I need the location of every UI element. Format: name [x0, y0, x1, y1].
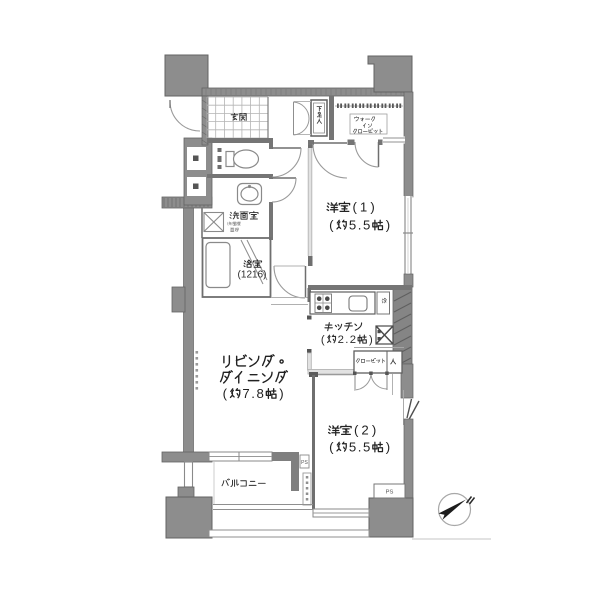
- svg-text:5: 5: [363, 439, 370, 454]
- svg-text:.: .: [345, 334, 348, 346]
- svg-text:2: 2: [361, 422, 368, 437]
- svg-text:): ): [386, 439, 390, 454]
- svg-text:5: 5: [363, 217, 370, 232]
- svg-text:(: (: [329, 439, 334, 454]
- svg-text:(: (: [223, 386, 228, 401]
- svg-text:(: (: [354, 422, 359, 437]
- svg-text:2: 2: [350, 334, 356, 346]
- svg-text:.: .: [358, 217, 362, 232]
- svg-text:5: 5: [349, 217, 356, 232]
- svg-text:1: 1: [360, 199, 367, 214]
- svg-text:5: 5: [349, 439, 356, 454]
- svg-text:.: .: [358, 439, 362, 454]
- svg-text:PS: PS: [386, 490, 394, 496]
- svg-text:(: (: [352, 199, 357, 214]
- svg-text:(: (: [321, 334, 325, 346]
- svg-text:8: 8: [257, 386, 264, 401]
- svg-text:.: .: [251, 386, 255, 401]
- svg-text:PS: PS: [301, 460, 308, 466]
- svg-text:(: (: [329, 217, 334, 232]
- svg-text:2: 2: [338, 334, 344, 346]
- svg-text:): ): [386, 217, 390, 232]
- svg-text:): ): [369, 334, 373, 346]
- svg-text:): ): [372, 422, 376, 437]
- svg-text:): ): [370, 199, 374, 214]
- svg-text:): ): [279, 386, 283, 401]
- svg-text:7: 7: [242, 386, 249, 401]
- svg-text:(1216): (1216): [238, 270, 267, 281]
